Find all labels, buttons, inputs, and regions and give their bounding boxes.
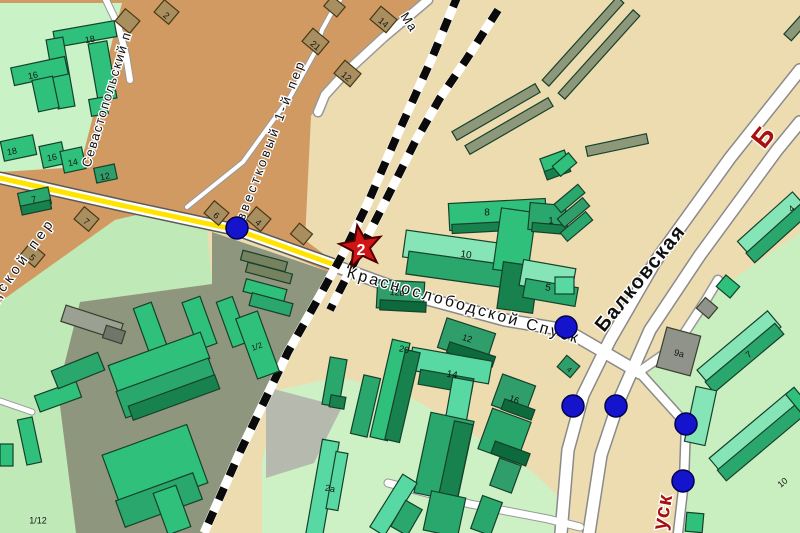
building [329, 395, 346, 409]
building-number: 16 [27, 69, 39, 81]
route-stop-dot[interactable] [226, 217, 248, 239]
route-stop-dot[interactable] [672, 470, 694, 492]
building-number: 8 [484, 208, 490, 219]
building [0, 444, 13, 466]
route-stop-dot[interactable] [675, 413, 697, 435]
building-number: 2а [324, 483, 336, 495]
building [423, 491, 466, 533]
building-number: 12 [99, 170, 111, 182]
building-number: 1 [548, 215, 553, 225]
building-number: 18 [84, 34, 96, 46]
building [685, 512, 704, 532]
map-canvas[interactable]: Севастопольский пИзвестковый 1-й перМаод… [0, 0, 800, 533]
building [555, 277, 574, 294]
map-viewport[interactable]: Севастопольский пИзвестковый 1-й перМаод… [0, 0, 800, 533]
building-number: 10 [460, 249, 473, 262]
route-stop-dot[interactable] [605, 395, 627, 417]
building-number: 14 [67, 156, 79, 168]
route-stop-dot[interactable] [555, 316, 577, 338]
building-number: 16 [46, 151, 58, 163]
route-stop-dot[interactable] [562, 395, 584, 417]
star-number: 2 [357, 242, 366, 259]
building-number: 12в [389, 287, 405, 298]
building-number: 1/12 [29, 515, 47, 525]
building-number: 18 [6, 145, 18, 157]
